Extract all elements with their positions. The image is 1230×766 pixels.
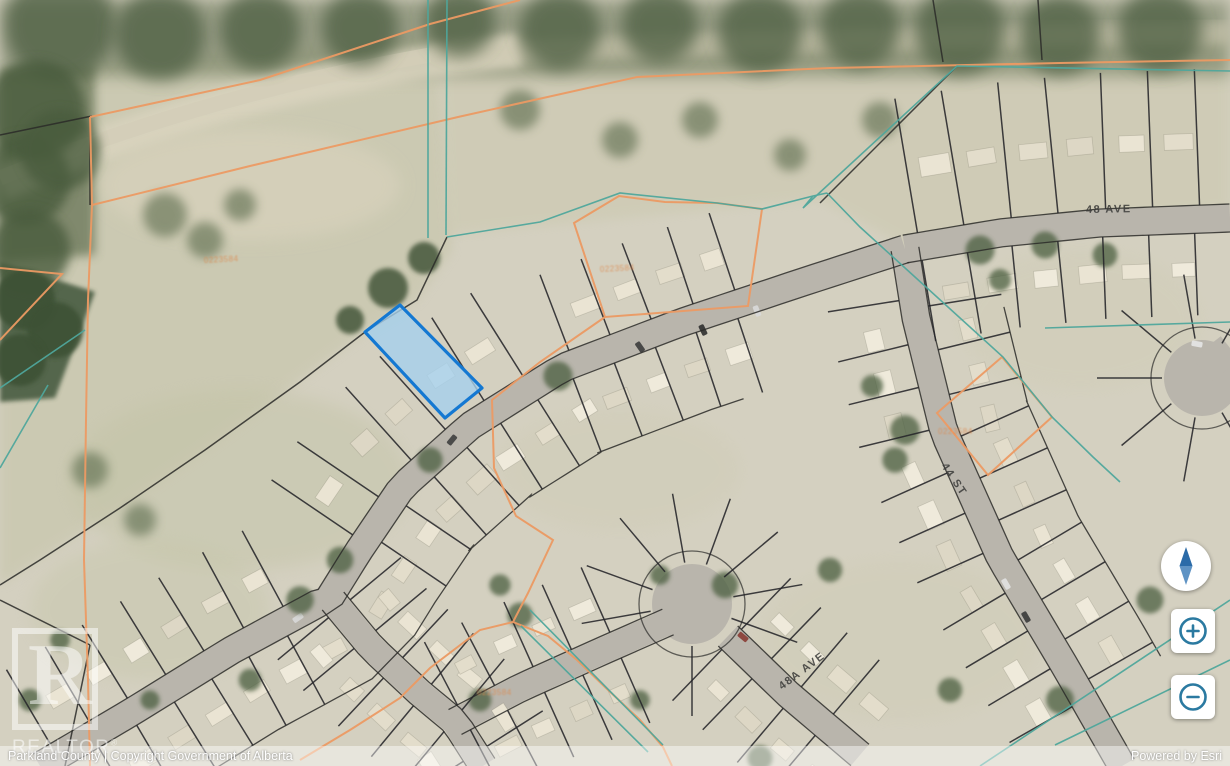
attribution-powered-by: Powered by Esri [1131,749,1222,763]
north-arrow-icon [1161,541,1211,591]
attribution-bar: Parkland County | Copyright Government o… [0,746,1230,766]
plan-number-label: 0223584 [938,427,973,436]
plan-number-label: 0223584 [204,254,239,265]
realtor-logo: R [12,628,98,730]
zoom-out-button[interactable] [1171,675,1215,719]
zoom-in-button[interactable] [1171,609,1215,653]
map-viewer: 48 AVE 44 ST 48A AVE 0223584 0223584 022… [0,0,1230,766]
plan-number-label: 0223584 [600,263,635,274]
compass-button[interactable] [1161,541,1211,591]
realtor-logo-letter: R [28,630,92,722]
plan-number-label: 0223584 [477,688,512,697]
zoom-out-icon [1171,675,1215,719]
zoom-in-icon [1171,609,1215,653]
realtor-watermark: R REALTOR® [12,628,119,759]
street-label-48-ave: 48 AVE [1086,203,1132,216]
map-canvas[interactable]: 48 AVE 44 ST 48A AVE 0223584 0223584 022… [0,0,1230,766]
attribution-source: Parkland County | Copyright Government o… [8,749,293,763]
